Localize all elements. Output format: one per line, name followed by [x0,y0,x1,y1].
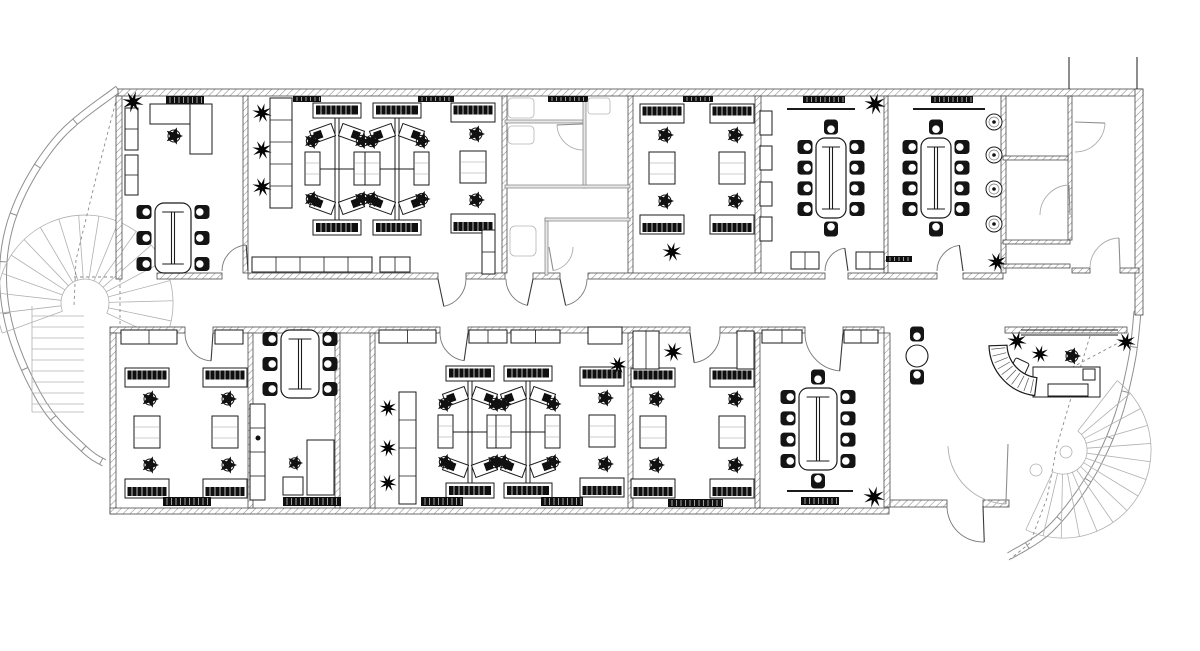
conference-chair [781,390,796,404]
wall-segment [1135,89,1143,315]
conference-chair [323,382,338,396]
wall-segment [588,273,825,279]
partition-wall [545,218,548,275]
cabinet [737,331,754,369]
wall-segment [248,273,438,279]
conference-chair [903,202,918,216]
conference-chair [798,161,813,175]
equipment-unit [166,96,204,104]
conference-table [281,330,319,398]
conference-chair [903,161,918,175]
conference-chair [798,140,813,154]
stair-post [1060,446,1072,458]
cabinet [760,111,772,135]
desk-surface [190,104,212,154]
cabinet [760,217,772,241]
conference-chair [811,370,825,385]
conference-chair [841,454,856,468]
cabinet [252,257,372,272]
wall-segment [243,96,248,273]
cabinet [760,146,772,170]
conference-chair [137,205,152,219]
conference-chair [841,411,856,425]
wall-segment [884,96,888,273]
wall-segment [983,500,1009,507]
conference-chair [137,231,152,245]
wall-segment [848,273,937,279]
partition-wall [583,96,586,188]
wall-segment [370,333,375,508]
floor-plan-page [0,0,1200,651]
round-planter [986,147,1002,163]
conference-chair [781,454,796,468]
conference-chair [841,390,856,404]
conference-chair [903,181,918,195]
equipment-unit [548,96,588,102]
conference-chair [263,332,278,346]
side-chair [910,327,924,342]
conference-chair [850,181,865,195]
conference-chair [824,222,838,237]
wall-segment [110,508,889,514]
wall-segment [887,500,947,507]
wall-segment [110,333,116,514]
round-table [906,345,928,367]
wall-segment [1120,268,1139,273]
partition-wall [505,120,583,123]
equipment-unit [163,497,211,506]
conference-chair [824,120,838,135]
fixture-outline [508,126,534,144]
desk-surface [307,440,334,495]
conference-chair [929,120,943,135]
side-chair [910,370,924,385]
wall-segment [755,333,760,508]
fixture-outline [588,98,610,114]
wall-segment [1068,96,1072,240]
conference-chair [798,202,813,216]
conference-chair [781,411,796,425]
conference-chair [781,433,796,447]
conference-chair [263,357,278,371]
stair-post [1030,464,1042,476]
round-planter [986,181,1002,197]
equipment-unit [418,96,454,102]
conference-chair [955,181,970,195]
wall-segment [1072,268,1090,273]
wall-segment [1003,240,1070,244]
wall-segment [1003,264,1070,268]
conference-chair [137,257,152,271]
conference-chair [850,202,865,216]
conference-chair [903,140,918,154]
conference-chair [850,140,865,154]
conference-table [816,138,846,218]
desk-surface [1048,384,1088,396]
conference-chair [955,161,970,175]
wall-segment [116,96,122,279]
conference-chair [323,357,338,371]
conference-chair [195,257,210,271]
partition-wall [505,185,630,188]
fixture-outline [508,98,534,118]
conference-chair [955,202,970,216]
wall-segment [884,333,890,507]
equipment-unit [801,497,839,505]
cabinet [283,477,303,495]
conference-table [921,138,951,218]
round-planter [986,216,1002,232]
office-floor-plan-drawing [0,0,1200,651]
desk-surface [1083,369,1095,380]
desk-surface [588,327,622,344]
cabinet [270,98,292,208]
partition-wall [545,218,630,221]
dot-marker [256,436,261,441]
cabinet [760,182,772,206]
fixture-outline [510,226,536,256]
conference-chair [929,222,943,237]
cabinet [215,330,243,344]
conference-chair [323,332,338,346]
conference-chair [841,433,856,447]
conference-chair [955,140,970,154]
conference-chair [195,231,210,245]
wall-segment [963,273,1003,279]
conference-chair [195,205,210,219]
equipment-unit [683,96,713,102]
conference-chair [850,161,865,175]
wall-segment [628,96,633,273]
wall-segment [1003,156,1068,160]
conference-chair [811,474,825,489]
conference-table [155,203,191,273]
conference-table [799,388,837,470]
conference-chair [263,382,278,396]
wall-segment [118,89,1143,96]
wall-segment [157,273,222,279]
round-planter [986,114,1002,130]
conference-chair [798,181,813,195]
